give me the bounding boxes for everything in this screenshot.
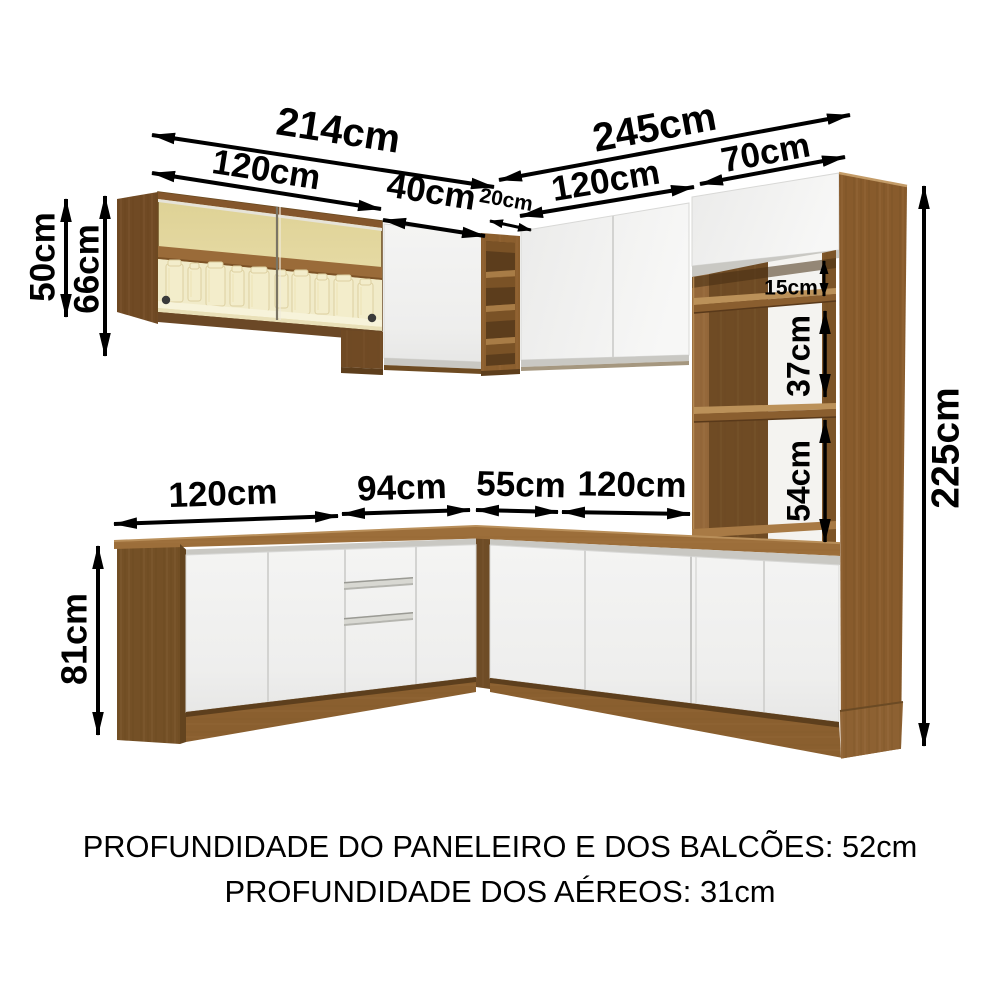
svg-text:PROFUNDIDADE DOS AÉREOS: 31cm: PROFUNDIDADE DOS AÉREOS: 31cm [225,874,776,909]
svg-text:94cm: 94cm [357,467,448,509]
svg-text:15cm: 15cm [764,277,818,300]
svg-text:37cm: 37cm [780,315,816,397]
svg-text:120cm: 120cm [168,472,278,515]
svg-text:66cm: 66cm [67,224,106,314]
svg-text:PROFUNDIDADE DO PANELEIRO E DO: PROFUNDIDADE DO PANELEIRO E DOS BALCÕES:… [83,829,918,864]
svg-text:50cm: 50cm [23,212,62,302]
svg-text:81cm: 81cm [54,593,95,685]
svg-text:225cm: 225cm [924,387,967,508]
svg-text:120cm: 120cm [577,464,687,505]
svg-text:54cm: 54cm [780,440,816,522]
svg-text:55cm: 55cm [476,464,566,505]
